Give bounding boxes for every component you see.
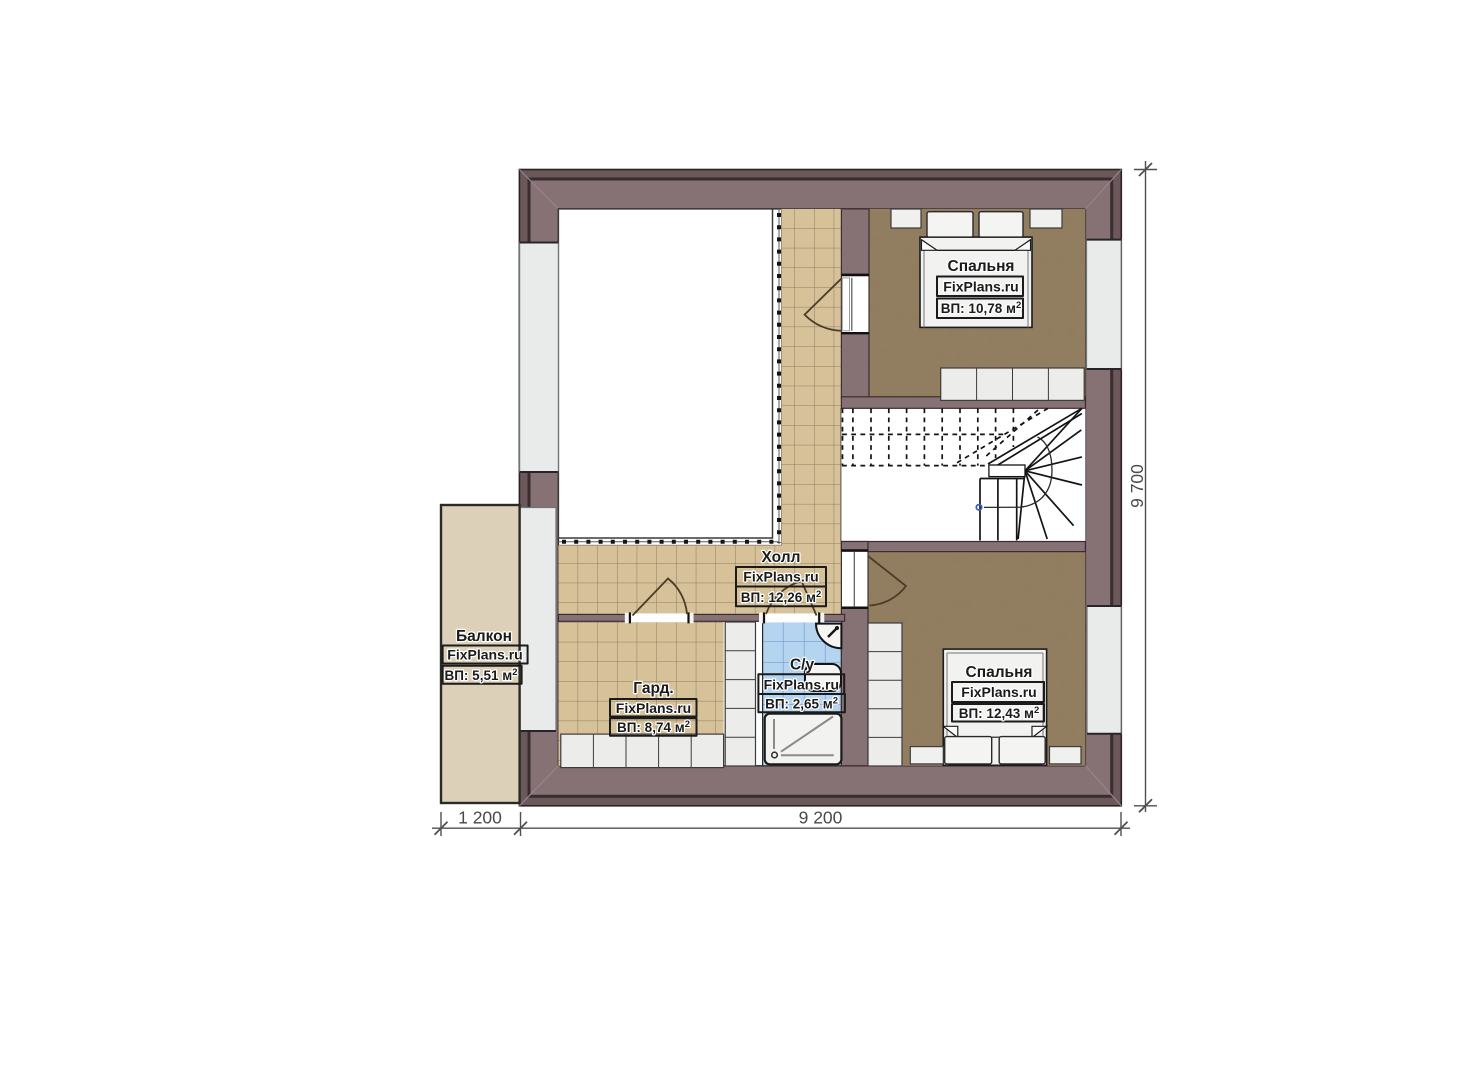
svg-text:FixPlans.ru: FixPlans.ru [943, 278, 1018, 294]
svg-text:ВП: 8,74 м2: ВП: 8,74 м2 [617, 719, 690, 735]
svg-text:ВП: 12,43 м2: ВП: 12,43 м2 [959, 705, 1040, 721]
svg-text:Балкон: Балкон [456, 628, 512, 645]
svg-text:ВП: 10,78 м2: ВП: 10,78 м2 [941, 300, 1022, 316]
svg-text:Спальня: Спальня [966, 664, 1033, 681]
svg-text:1 200: 1 200 [458, 808, 502, 828]
svg-text:FixPlans.ru: FixPlans.ru [961, 684, 1036, 700]
svg-text:9 700: 9 700 [1127, 464, 1147, 508]
svg-text:Холл: Холл [762, 549, 801, 566]
svg-text:FixPlans.ru: FixPlans.ru [447, 647, 522, 663]
svg-text:FixPlans.ru: FixPlans.ru [764, 676, 839, 692]
svg-text:ВП: 12,26 м2: ВП: 12,26 м2 [741, 589, 822, 605]
svg-text:FixPlans.ru: FixPlans.ru [743, 569, 818, 585]
svg-text:Гард.: Гард. [633, 680, 673, 697]
svg-text:9 200: 9 200 [799, 808, 843, 828]
svg-text:Спальня: Спальня [948, 258, 1015, 275]
svg-text:FixPlans.ru: FixPlans.ru [616, 700, 691, 716]
svg-text:С/у: С/у [790, 657, 815, 674]
svg-text:ВП: 2,65 м2: ВП: 2,65 м2 [765, 696, 838, 712]
svg-text:ВП: 5,51 м2: ВП: 5,51 м2 [444, 667, 517, 683]
